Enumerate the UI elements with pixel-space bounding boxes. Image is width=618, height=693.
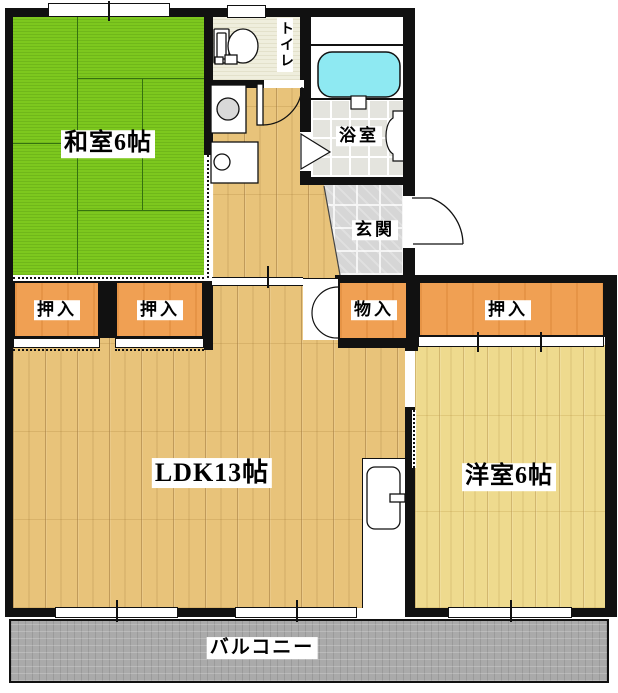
wall-closet-divider (100, 281, 115, 338)
window-ldk-2-tick (296, 600, 298, 622)
opening-bath-door (300, 132, 311, 171)
tatami-mat-line (77, 78, 204, 79)
label-washitsu: 和室6帖 (61, 130, 155, 158)
opening-washroom-door (264, 80, 304, 88)
dotted-washitsu-east (207, 155, 209, 278)
closet-east-sliding-door (418, 336, 604, 347)
label-toilet: トイレ (277, 18, 293, 72)
wall-right (605, 275, 617, 617)
window-washitsu-tick (108, 1, 110, 21)
closet-west-1-sliding-door (13, 338, 100, 348)
closet-east-tick-1 (477, 332, 479, 352)
label-closet-west-2: 押入 (137, 300, 183, 320)
window-yoshitsu-tick (510, 600, 512, 622)
opening-ldk-yoshitsu (405, 351, 415, 407)
opening-niche-bottom (357, 608, 405, 617)
refrigerator-niche (362, 458, 406, 609)
floorplan: 和室6帖 トイレ 浴室 玄関 押入 押入 物入 押入 LDK13帖 洋室6帖 バ… (0, 0, 618, 693)
wall-monoire-bottom (338, 340, 408, 348)
wall-closet-west-right (204, 281, 213, 350)
closet-west-2-sliding-door (115, 338, 204, 348)
closet-east-tick-2 (540, 332, 542, 352)
dotted-yoshitsu-wall (413, 410, 415, 468)
label-yoshitsu: 洋室6帖 (462, 463, 556, 491)
bath-deck (311, 17, 403, 101)
bath-floor-line (311, 98, 403, 100)
opening-hall-tick (267, 266, 269, 288)
label-bath: 浴室 (336, 126, 382, 146)
label-balcony: バルコニー (207, 637, 318, 659)
window-toilet (227, 5, 266, 18)
wall-toilet-bath (300, 17, 311, 88)
dotted-closet-w2 (115, 349, 204, 351)
label-genkan: 玄関 (352, 220, 398, 240)
wall-bath-bottom (300, 177, 415, 185)
label-closet-west-1: 押入 (34, 300, 80, 320)
entrance-door-swing (412, 198, 463, 244)
label-storage: 物入 (351, 300, 397, 320)
wall-left (5, 8, 13, 617)
monoire-door-niche (303, 278, 338, 340)
window-ldk-1-tick (116, 600, 118, 622)
bath-window-sill-line (311, 44, 403, 46)
tatami-mat-line (77, 210, 204, 211)
label-closet-east: 押入 (485, 300, 531, 320)
wall-ldk-yoshitsu-stub (405, 340, 418, 351)
opening-entrance-door (403, 196, 415, 248)
opening-hall-ldk (212, 277, 303, 286)
wall-east-block-top (335, 275, 617, 283)
label-ldk: LDK13帖 (152, 458, 272, 488)
dotted-closet-w1 (13, 349, 100, 351)
dotted-washitsu-south (13, 277, 204, 279)
